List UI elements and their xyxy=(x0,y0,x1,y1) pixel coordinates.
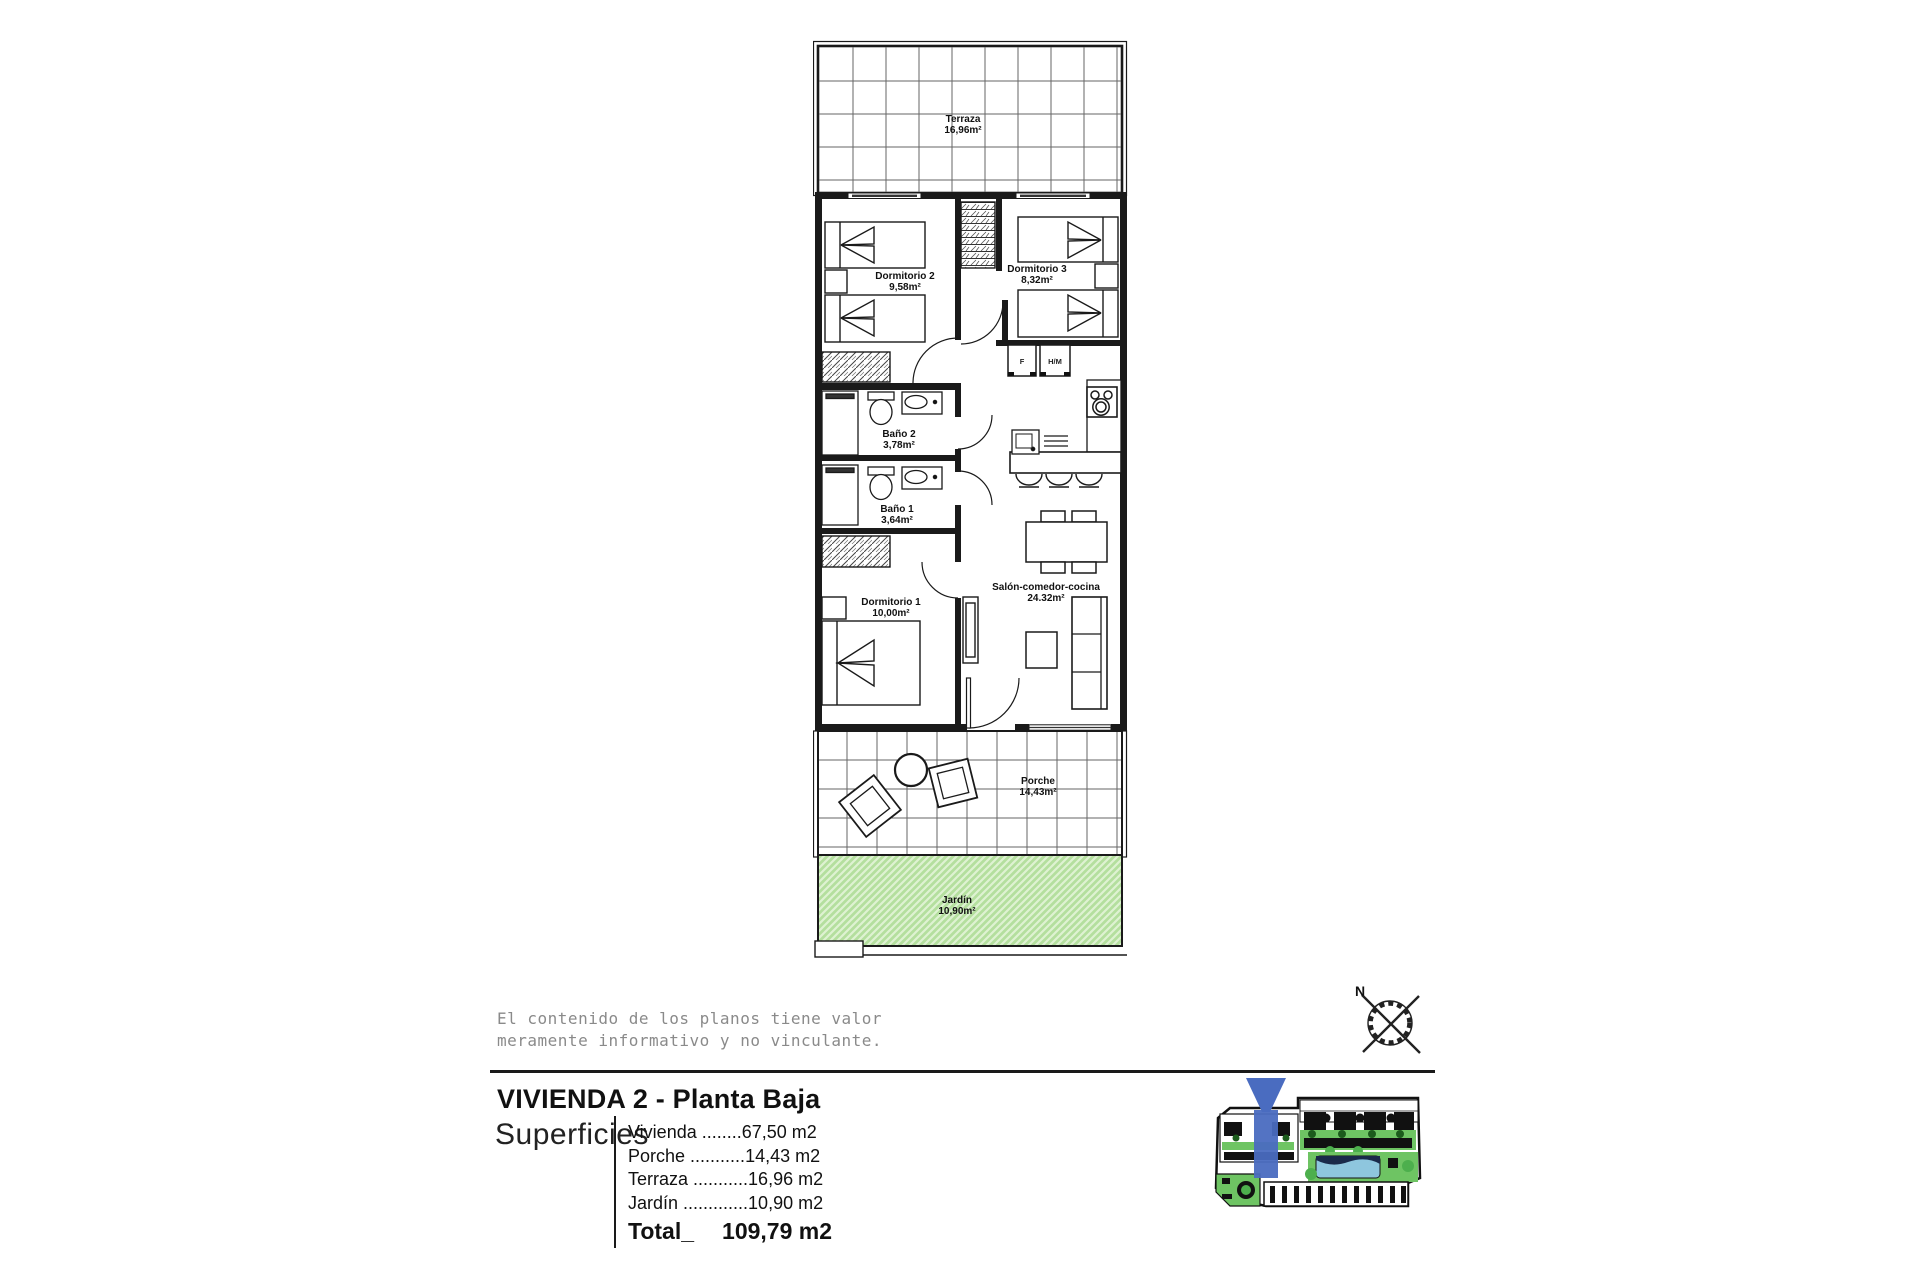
jardin-room: Jardín 10,90m² xyxy=(815,855,1127,957)
porche-label: Porche xyxy=(1021,776,1055,787)
dining-table xyxy=(1026,522,1107,562)
wardrobe xyxy=(961,202,995,268)
sofa xyxy=(1072,597,1107,709)
nightstand xyxy=(822,597,846,619)
patio-table xyxy=(895,754,927,786)
bano2-room: Baño 2 3,78m² xyxy=(822,391,942,455)
row-value: 16,96 m2 xyxy=(748,1169,823,1189)
compass-icon: N xyxy=(1338,972,1448,1068)
towel-bar xyxy=(826,468,854,473)
toilet xyxy=(870,400,892,425)
terraza-label: Terraza xyxy=(946,114,981,125)
total-label: Total_ xyxy=(628,1218,694,1244)
superficie-row: Porche ...........14,43 m2 xyxy=(628,1145,823,1169)
wardrobe xyxy=(822,352,890,382)
row-leader: ........... xyxy=(688,1169,748,1189)
row-leader: ........... xyxy=(685,1146,745,1166)
salon-area: 24.32m² xyxy=(1027,593,1065,604)
porche-area: 14,43m² xyxy=(1019,787,1057,798)
row-label: Jardín xyxy=(628,1193,678,1213)
toilet-tank xyxy=(868,392,894,400)
dormitorio3-label: Dormitorio 3 xyxy=(1007,264,1067,275)
oven-label: H/M xyxy=(1048,357,1062,366)
compass-north-label: N xyxy=(1355,983,1365,999)
toilet xyxy=(870,475,892,500)
total-row: Total_109,79 m2 xyxy=(628,1218,832,1245)
disclaimer: El contenido de los planos tiene valor m… xyxy=(497,1008,882,1052)
superficie-row: Jardín .............10,90 m2 xyxy=(628,1192,823,1216)
row-label: Vivienda xyxy=(628,1122,697,1142)
terraza-area: 16,96m² xyxy=(944,125,982,136)
counter-bar xyxy=(1010,452,1121,473)
superficies-table: Vivienda ........67,50 m2 Porche .......… xyxy=(628,1121,823,1215)
floor-plan: Terraza 16,96m² xyxy=(813,40,1130,962)
superficie-row: Terraza ...........16,96 m2 xyxy=(628,1168,823,1192)
page-title: VIVIENDA 2 - Planta Baja xyxy=(497,1084,820,1115)
chair xyxy=(1072,511,1096,522)
siteplan-minimap xyxy=(1208,1078,1424,1216)
disclaimer-line1: El contenido de los planos tiene valor xyxy=(497,1008,882,1030)
shower xyxy=(822,391,858,455)
dormitorio2-area: 9,58m² xyxy=(889,282,921,293)
garden-step xyxy=(815,941,863,957)
superficies-label: Superficies xyxy=(495,1118,649,1152)
jardin-label: Jardín xyxy=(942,895,972,906)
door-arcs xyxy=(913,302,1019,728)
row-value: 67,50 m2 xyxy=(742,1122,817,1142)
bano1-area: 3,64m² xyxy=(881,515,913,526)
salon-room: F H/M Salón-comedor-cocina xyxy=(992,345,1121,709)
dormitorio1-room: Dormitorio 1 10,00m² xyxy=(822,536,978,705)
dormitorio3-area: 8,32m² xyxy=(1021,275,1053,286)
bano1-label: Baño 1 xyxy=(880,504,914,515)
dishwasher xyxy=(1044,436,1068,446)
dormitorio1-area: 10,00m² xyxy=(872,608,910,619)
terraza-room: Terraza 16,96m² xyxy=(814,42,1127,196)
superficies-separator xyxy=(614,1116,616,1248)
siteplan-pool xyxy=(1305,1152,1418,1182)
chair xyxy=(1041,562,1065,573)
toilet-tank xyxy=(868,467,894,475)
chair xyxy=(1041,511,1065,522)
siteplan-parking xyxy=(1264,1182,1408,1206)
chair xyxy=(1072,562,1096,573)
porche-room: Porche 14,43m² xyxy=(814,731,1127,857)
nightstand xyxy=(1095,264,1118,288)
side-table xyxy=(1026,632,1057,668)
row-leader: ........ xyxy=(697,1122,742,1142)
bano1-room: Baño 1 3,64m² xyxy=(822,465,942,526)
bano2-label: Baño 2 xyxy=(882,429,916,440)
dormitorio3-room: Dormitorio 3 8,32m² xyxy=(961,202,1118,337)
salon-label: Salón-comedor-cocina xyxy=(992,582,1100,593)
jardin-area: 10,90m² xyxy=(938,906,976,917)
towel-bar xyxy=(826,394,854,399)
dormitorio2-room: Dormitorio 2 9,58m² xyxy=(822,222,935,382)
siteplan-green-left xyxy=(1216,1174,1260,1206)
superficie-row: Vivienda ........67,50 m2 xyxy=(628,1121,823,1145)
disclaimer-line2: meramente informativo y no vinculante. xyxy=(497,1030,882,1052)
row-leader: ............. xyxy=(678,1193,748,1213)
row-label: Porche xyxy=(628,1146,685,1166)
row-value: 10,90 m2 xyxy=(748,1193,823,1213)
bano2-area: 3,78m² xyxy=(883,440,915,451)
shower xyxy=(822,465,858,525)
fridge-label: F xyxy=(1020,357,1025,366)
page: Terraza 16,96m² xyxy=(0,0,1920,1280)
nightstand xyxy=(825,270,847,293)
wardrobe xyxy=(822,536,890,567)
dormitorio2-label: Dormitorio 2 xyxy=(875,271,935,282)
dormitorio1-label: Dormitorio 1 xyxy=(861,597,921,608)
row-label: Terraza xyxy=(628,1169,688,1189)
total-value: 109,79 m2 xyxy=(722,1218,832,1244)
bar-stools xyxy=(1016,474,1102,487)
section-divider xyxy=(490,1070,1435,1073)
row-value: 14,43 m2 xyxy=(745,1146,820,1166)
